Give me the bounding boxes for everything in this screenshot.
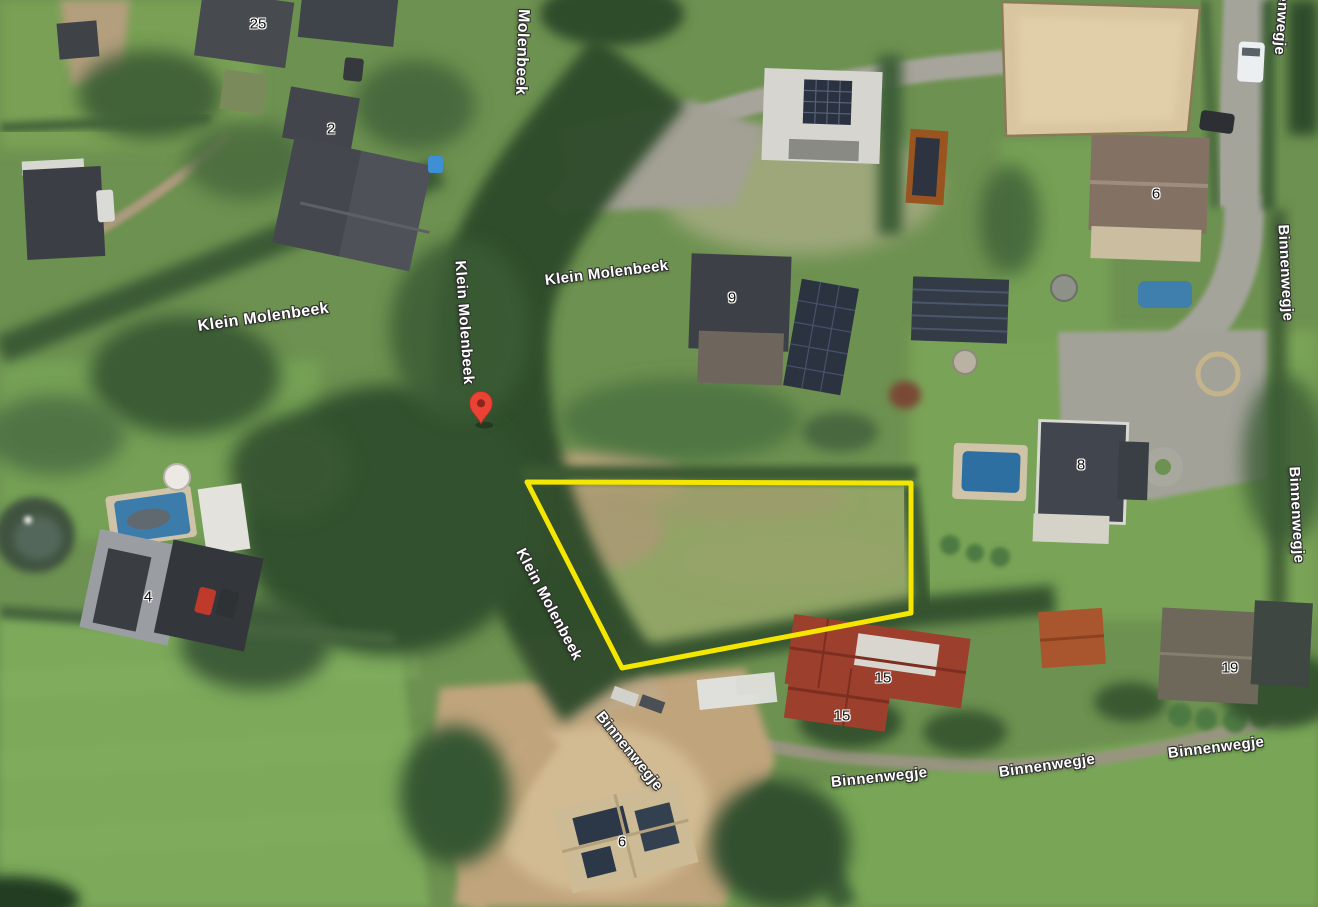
pin-inner-dot (477, 399, 485, 407)
pin-shadow (475, 422, 493, 429)
aerial-imagery (0, 0, 1318, 907)
satellite-map-canvas[interactable]: Klein MolenbeekMolenbeekKlein MolenbeekK… (0, 0, 1318, 907)
